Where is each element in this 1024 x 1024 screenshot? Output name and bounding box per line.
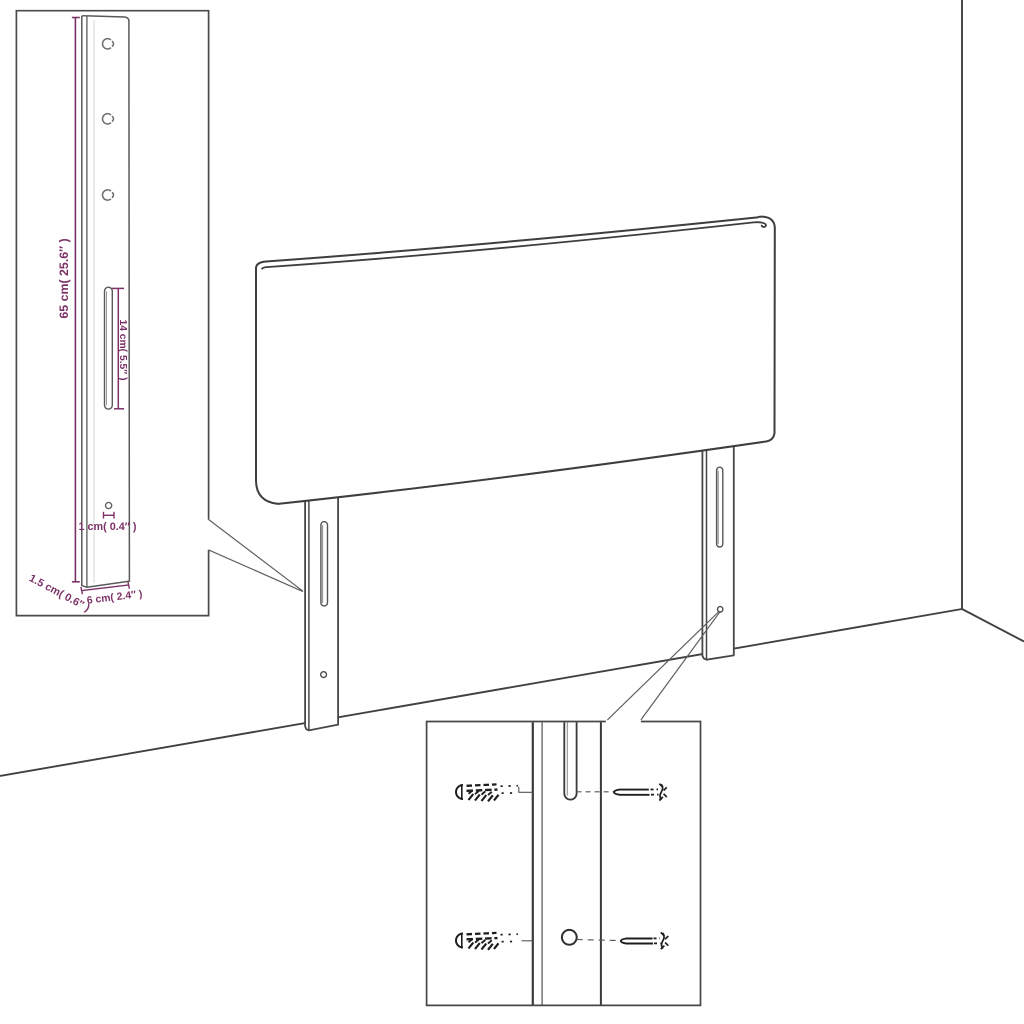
svg-text:65 cm( 25.6″ ): 65 cm( 25.6″ ): [57, 238, 71, 318]
svg-text:14 cm( 5.5″ ): 14 cm( 5.5″ ): [117, 319, 128, 380]
svg-text:1 cm( 0.4″ ): 1 cm( 0.4″ ): [79, 521, 137, 533]
